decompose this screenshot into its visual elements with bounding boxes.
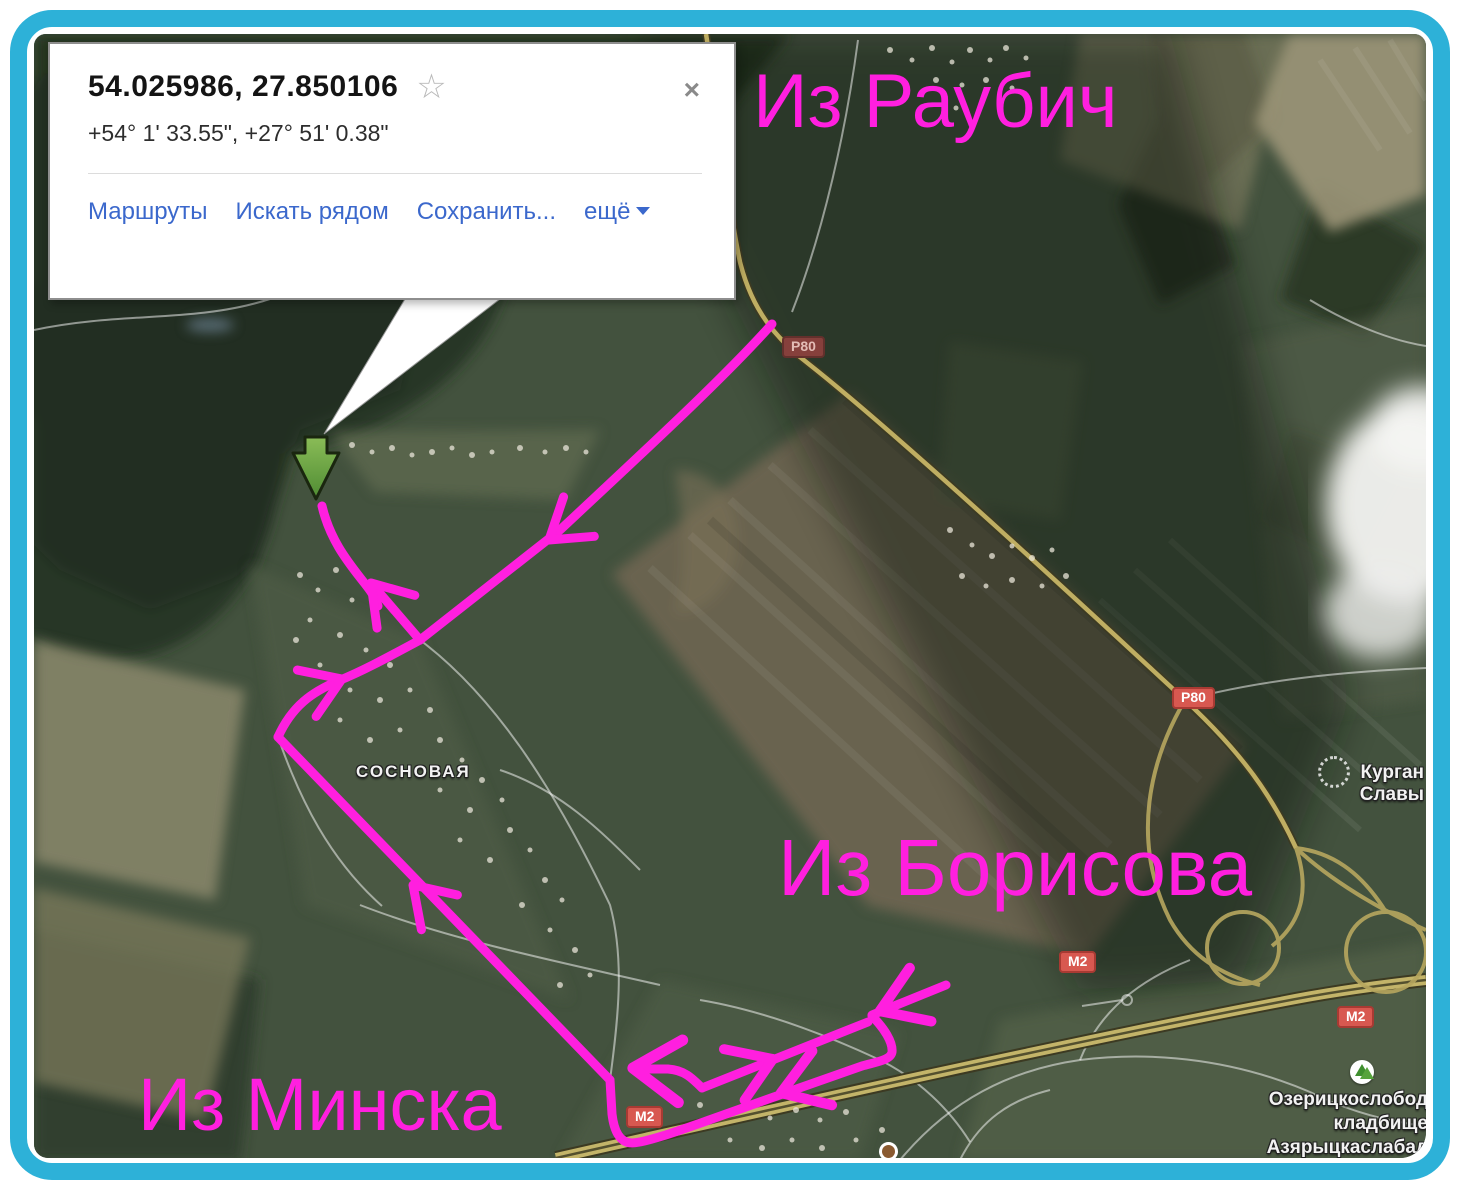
kurgan-slavy-label: Курган Славы [1340, 762, 1424, 806]
tree-icon [1360, 1067, 1374, 1079]
routes-link[interactable]: Маршруты [88, 198, 208, 226]
village-label-sosnovaya: СОСНОВАЯ [356, 762, 471, 782]
popup-divider [88, 173, 702, 174]
map-canvas[interactable]: СОСНОВАЯ Курган Славы Озерицкослобод кла… [34, 34, 1426, 1158]
cemetery-line3: Азярыцкаслабад [1240, 1136, 1426, 1158]
popup-title-coordinates: 54.025986, 27.850106 [88, 70, 398, 104]
search-nearby-link[interactable]: Искать рядом [236, 198, 389, 226]
chevron-down-icon [636, 207, 650, 215]
poi-dot-icon [879, 1142, 898, 1158]
road-badge-p80-right: P80 [1172, 687, 1215, 709]
save-link[interactable]: Сохранить... [417, 198, 556, 226]
close-icon[interactable]: × [684, 76, 700, 104]
more-link[interactable]: ещё [584, 198, 650, 226]
road-badge-p80-top: P80 [782, 336, 825, 358]
road-badge-m2-bottom: M2 [626, 1106, 663, 1128]
cemetery-icon [1350, 1060, 1374, 1084]
cemetery-line1: Озерицкослобод [1240, 1088, 1426, 1112]
monument-icon [1318, 756, 1350, 788]
cemetery-label: Озерицкослобод кладбище Азярыцкаслабад [1240, 1088, 1426, 1158]
kurgan-line2: Славы [1340, 784, 1424, 806]
kurgan-line1: Курган [1340, 762, 1424, 784]
road-badge-m2-right: M2 [1337, 1006, 1374, 1028]
star-icon[interactable]: ☆ [416, 70, 446, 104]
popup-dms-coordinates: +54° 1' 33.55", +27° 51' 0.38" [88, 120, 704, 147]
cemetery-line2: кладбище [1240, 1112, 1426, 1136]
road-badge-m2-center: M2 [1059, 951, 1096, 973]
coordinate-popup: 54.025986, 27.850106 ☆ +54° 1' 33.55", +… [48, 42, 736, 300]
